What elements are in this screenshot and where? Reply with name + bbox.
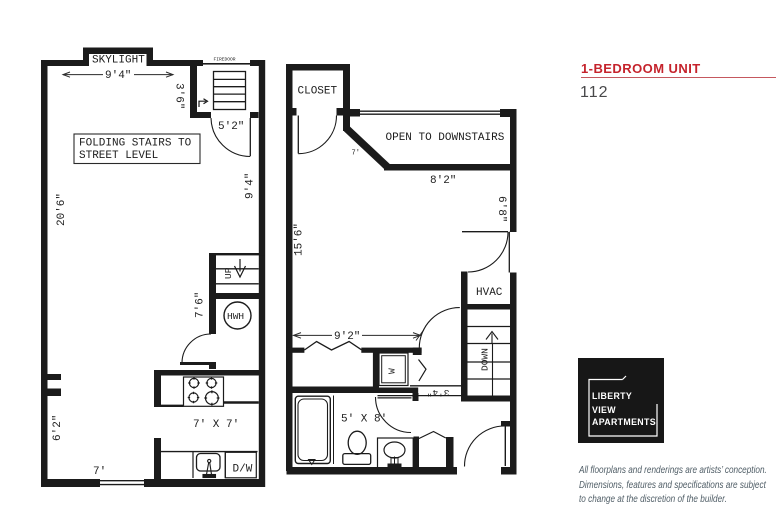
- svg-text:7' X 7': 7' X 7': [193, 419, 239, 431]
- svg-text:15'6": 15'6": [294, 223, 306, 256]
- svg-text:5'2": 5'2": [218, 121, 244, 133]
- svg-text:STREET LEVEL: STREET LEVEL: [79, 150, 158, 162]
- svg-text:CLOSET: CLOSET: [298, 86, 338, 98]
- svg-text:DOWN: DOWN: [480, 348, 491, 371]
- svg-text:7': 7': [93, 466, 106, 478]
- svg-text:9'4": 9'4": [245, 173, 257, 199]
- svg-text:3'4": 3'4": [427, 387, 450, 398]
- svg-text:20'6": 20'6": [56, 193, 68, 226]
- svg-text:W: W: [387, 368, 398, 374]
- svg-text:3'6": 3'6": [173, 83, 185, 109]
- svg-text:5' X 8': 5' X 8': [341, 414, 387, 426]
- svg-text:9'2": 9'2": [334, 331, 360, 343]
- svg-text:FOLDING STAIRS TO: FOLDING STAIRS TO: [79, 138, 192, 150]
- svg-text:7'6": 7'6": [195, 292, 207, 318]
- svg-text:6'2": 6'2": [52, 415, 64, 441]
- svg-text:6'8": 6'8": [495, 196, 507, 222]
- svg-text:HWH: HWH: [227, 311, 244, 322]
- svg-text:HVAC: HVAC: [476, 287, 503, 299]
- svg-text:7': 7': [352, 150, 360, 158]
- svg-text:OPEN TO DOWNSTAIRS: OPEN TO DOWNSTAIRS: [386, 132, 505, 144]
- svg-text:D/W: D/W: [233, 464, 253, 476]
- svg-text:9'4": 9'4": [105, 70, 131, 82]
- svg-text:SKYLIGHT: SKYLIGHT: [92, 55, 145, 67]
- svg-text:8'2": 8'2": [430, 175, 456, 187]
- svg-text:UP: UP: [223, 267, 234, 279]
- svg-text:FIREDOOR: FIREDOOR: [214, 57, 236, 63]
